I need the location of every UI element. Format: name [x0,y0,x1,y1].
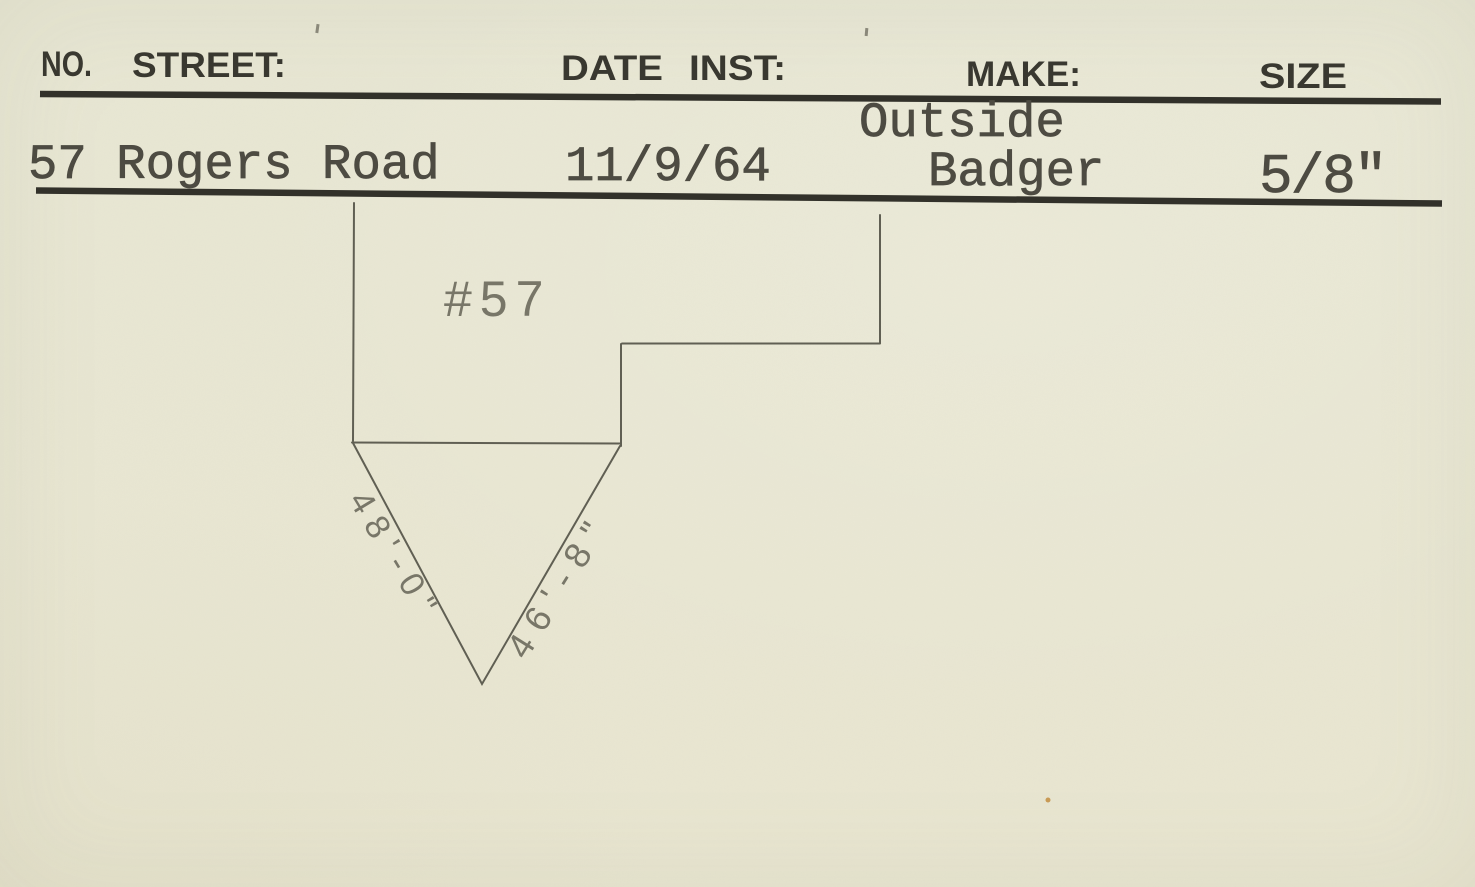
svg-text:NO.: NO. [41,45,92,84]
svg-text:5/8": 5/8" [1259,145,1385,209]
svg-text:STREET:: STREET: [132,46,286,85]
svg-text:Outside: Outside [859,95,1065,151]
svg-text:MAKE:: MAKE: [966,55,1081,94]
svg-text:INST:: INST: [689,49,786,88]
svg-text:11/9/64: 11/9/64 [565,139,771,195]
svg-text:57 Rogers Road: 57 Rogers Road [28,137,440,193]
svg-text:DATE: DATE [561,49,663,88]
svg-text:SIZE: SIZE [1259,57,1347,96]
svg-text:#57: #57 [444,271,551,327]
svg-text:Badger: Badger [928,144,1104,200]
